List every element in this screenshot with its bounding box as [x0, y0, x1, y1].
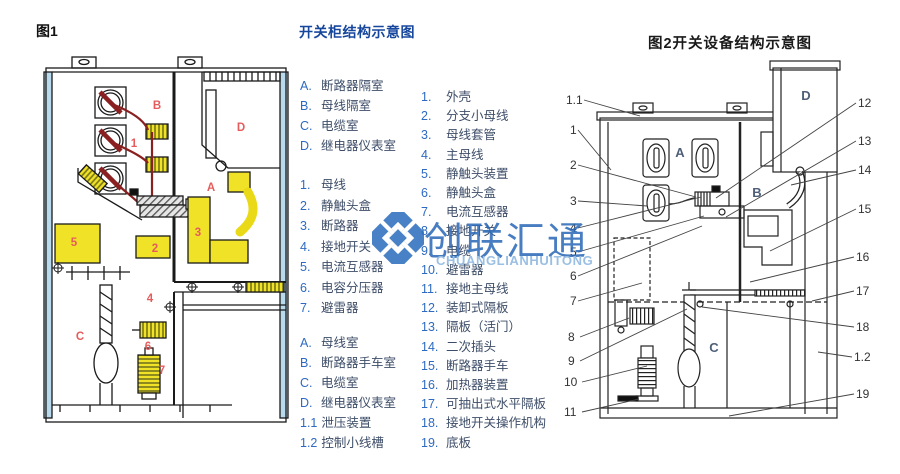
item-label: 泄压装置: [321, 413, 371, 433]
item-id: 5.: [421, 165, 441, 184]
callout-number: 14: [858, 163, 872, 177]
legend-item: D.继电器仪表室: [300, 136, 396, 156]
legend-item: 2.分支小母线: [421, 107, 546, 126]
callout-number: 13: [858, 134, 872, 148]
page: 图1: [0, 0, 900, 474]
legend-item: A.母线室: [300, 333, 396, 353]
legend-item: 14.二次插头: [421, 338, 546, 357]
item-label: 外壳: [446, 88, 471, 107]
callout-number: 1.1: [566, 93, 583, 107]
item-label: 静触头盒: [446, 184, 496, 203]
legend-item: 13.隔板（活门）: [421, 318, 546, 337]
item-label: 继电器仪表室: [321, 136, 396, 156]
legend-item: 5.电流互感器: [300, 257, 384, 278]
switchgear-structure: [578, 61, 856, 418]
item-label: 控制小线槽: [321, 433, 384, 453]
item-label: 底板: [446, 434, 471, 453]
legend2-parts: 1.外壳 2.分支小母线 3.母线套管 4.主母线 5.静触头装置 6.静触头盒…: [421, 88, 546, 453]
callout-number: 15: [858, 202, 872, 216]
legend-item: 16.加热器装置: [421, 376, 546, 395]
item-id: 3.: [421, 126, 441, 145]
compartment-letter: B: [752, 185, 761, 200]
item-label: 二次插头: [446, 338, 496, 357]
callout-number: 3: [570, 194, 577, 208]
callout-number: 11: [564, 405, 577, 419]
legend-item: C.电缆室: [300, 116, 396, 136]
legend-item: 7.避雷器: [300, 298, 384, 319]
item-label: 隔板（活门）: [446, 318, 521, 337]
watermark-en-text: CHUANGLIANHUITONG: [436, 253, 593, 268]
callout-number: 1.2: [854, 350, 871, 364]
legend-item: 6.电容分压器: [300, 278, 384, 299]
callout-number: 2: [570, 158, 577, 172]
item-label: 主母线: [446, 146, 484, 165]
callout-number: 8: [568, 330, 575, 344]
legend-item: 2.静触头盒: [300, 196, 384, 217]
item-label: 分支小母线: [446, 107, 509, 126]
legend-item: 15.断路器手车: [421, 357, 546, 376]
legend-item: 4.接地开关: [300, 237, 384, 258]
legend1-compartments: A.断路器隔室 B.母线隔室 C.电缆室 D.继电器仪表室: [300, 76, 396, 156]
legend-item: 3.断路器: [300, 216, 384, 237]
item-id: 6.: [300, 278, 317, 299]
item-id: 18.: [421, 414, 441, 433]
callout-number: 17: [856, 284, 870, 298]
legend-item: 3.母线套管: [421, 126, 546, 145]
item-id: D.: [300, 393, 317, 413]
item-label: 可抽出式水平隔板: [446, 395, 546, 414]
legend-item: 12.装卸式隔板: [421, 299, 546, 318]
watermark-logo-icon: [372, 212, 424, 264]
callout-number: 9: [568, 354, 575, 368]
legend-item: 1.1泄压装置: [300, 413, 396, 433]
legend1-compartments2: A.母线室 B.断路器手车室 C.电缆室 D.继电器仪表室 1.1泄压装置 1.…: [300, 333, 396, 453]
legend-item: B.断路器手车室: [300, 353, 396, 373]
callout-number: 19: [856, 387, 870, 401]
callout-number: 1: [570, 123, 577, 137]
item-label: 加热器装置: [446, 376, 509, 395]
legend-item: 17.可抽出式水平隔板: [421, 395, 546, 414]
item-label: 断路器手车: [446, 357, 509, 376]
item-label: 接地开关: [321, 237, 371, 258]
legend-item: 18.接地开关操作机构: [421, 414, 546, 433]
callout-number: 10: [564, 375, 578, 389]
legend-item: 1.母线: [300, 175, 384, 196]
item-label: 电容分压器: [321, 278, 384, 299]
item-label: 断路器手车室: [321, 353, 396, 373]
legend-item: 5.静触头装置: [421, 165, 546, 184]
item-id: 2.: [421, 107, 441, 126]
item-label: 电缆室: [321, 116, 359, 136]
callout-number: 12: [858, 96, 872, 110]
item-id: D.: [300, 136, 317, 156]
item-label: 断路器: [321, 216, 359, 237]
item-label: 接地主母线: [446, 280, 509, 299]
item-id: B.: [300, 353, 317, 373]
item-label: 装卸式隔板: [446, 299, 509, 318]
callout-number: 6: [570, 269, 577, 283]
item-label: 电缆室: [321, 373, 359, 393]
item-label: 母线隔室: [321, 96, 371, 116]
compartment-letter: D: [801, 88, 810, 103]
item-id: 1.1: [300, 413, 317, 433]
item-id: 15.: [421, 357, 441, 376]
item-id: 4.: [300, 237, 317, 258]
legend1-title: 开关柜结构示意图: [299, 22, 415, 42]
item-id: 19.: [421, 434, 441, 453]
callout-number: 7: [570, 294, 577, 308]
legend-item: 19.底板: [421, 434, 546, 453]
legend-item: D.继电器仪表室: [300, 393, 396, 413]
legend1-parts: 1.母线 2.静触头盒 3.断路器 4.接地开关 5.电流互感器 6.电容分压器…: [300, 175, 384, 319]
item-id: 13.: [421, 318, 441, 337]
item-id: 3.: [300, 216, 317, 237]
item-id: 12.: [421, 299, 441, 318]
legend-item: A.断路器隔室: [300, 76, 396, 96]
legend-item: 1.外壳: [421, 88, 546, 107]
item-id: 6.: [421, 184, 441, 203]
legend-item: 1.2控制小线槽: [300, 433, 396, 453]
callout-number: 18: [856, 320, 870, 334]
item-label: 母线室: [321, 333, 359, 353]
item-label: 静触头盒: [321, 196, 371, 217]
item-label: 避雷器: [321, 298, 359, 319]
item-id: 1.: [421, 88, 441, 107]
item-id: C.: [300, 373, 317, 393]
item-id: 7.: [300, 298, 317, 319]
compartment-letter: A: [675, 145, 685, 160]
item-label: 母线: [321, 175, 346, 196]
item-label: 接地开关操作机构: [446, 414, 546, 433]
item-id: 1.: [300, 175, 317, 196]
item-id: 16.: [421, 376, 441, 395]
item-label: 继电器仪表室: [321, 393, 396, 413]
item-id: 2.: [300, 196, 317, 217]
item-id: 4.: [421, 146, 441, 165]
compartment-letter: C: [709, 340, 719, 355]
item-label: 静触头装置: [446, 165, 509, 184]
legend-item: B.母线隔室: [300, 96, 396, 116]
item-id: 17.: [421, 395, 441, 414]
legend-item: 11.接地主母线: [421, 280, 546, 299]
callout-number: 16: [856, 250, 870, 264]
item-id: 5.: [300, 257, 317, 278]
item-label: 断路器隔室: [321, 76, 384, 96]
legend-item: 6.静触头盒: [421, 184, 546, 203]
item-id: A.: [300, 76, 317, 96]
item-label: 母线套管: [446, 126, 496, 145]
item-id: 1.2: [300, 433, 317, 453]
item-id: C.: [300, 116, 317, 136]
item-id: B.: [300, 96, 317, 116]
legend-item: C.电缆室: [300, 373, 396, 393]
item-id: 11.: [421, 280, 441, 299]
item-id: 14.: [421, 338, 441, 357]
legend-item: 4.主母线: [421, 146, 546, 165]
item-id: A.: [300, 333, 317, 353]
